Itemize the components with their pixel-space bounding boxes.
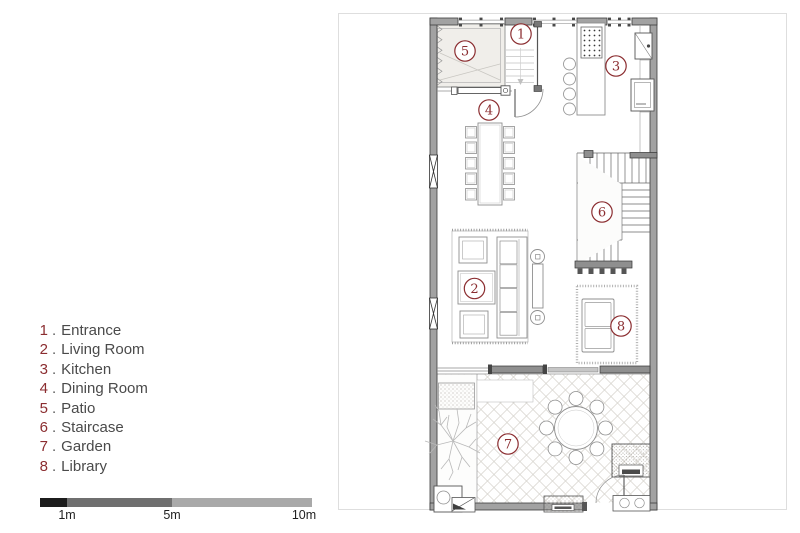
speaker bbox=[531, 250, 545, 264]
room-number: 3 bbox=[612, 60, 620, 75]
room-marker-library: 8 bbox=[611, 316, 631, 336]
room-marker-dining-room: 4 bbox=[479, 100, 499, 120]
room-marker-garden: 7 bbox=[498, 434, 518, 454]
tv-console bbox=[533, 264, 544, 308]
room-marker-living-room: 2 bbox=[464, 278, 484, 298]
garden-paving bbox=[437, 374, 650, 504]
wall-left bbox=[430, 18, 437, 510]
room-marker-entrance: 1 bbox=[511, 24, 531, 44]
room-marker-patio: 5 bbox=[455, 41, 475, 61]
garden-table-set bbox=[540, 392, 613, 465]
room-number: 6 bbox=[598, 206, 606, 221]
floor-plan: 1 2 3 4 5 6 7 8 bbox=[0, 0, 800, 533]
room-number: 8 bbox=[617, 320, 625, 335]
room-number: 2 bbox=[470, 282, 478, 297]
room-marker-kitchen: 3 bbox=[606, 56, 626, 76]
speaker bbox=[531, 311, 545, 325]
room-number: 1 bbox=[517, 28, 525, 43]
dining-set bbox=[466, 123, 515, 205]
room-number: 4 bbox=[485, 104, 493, 119]
cooktop bbox=[581, 27, 602, 58]
faucet bbox=[647, 44, 650, 47]
dining-table bbox=[478, 123, 502, 205]
room-number: 7 bbox=[504, 438, 512, 453]
round-table bbox=[555, 407, 598, 450]
room-number: 5 bbox=[461, 45, 469, 60]
room-marker-staircase: 6 bbox=[592, 202, 612, 222]
